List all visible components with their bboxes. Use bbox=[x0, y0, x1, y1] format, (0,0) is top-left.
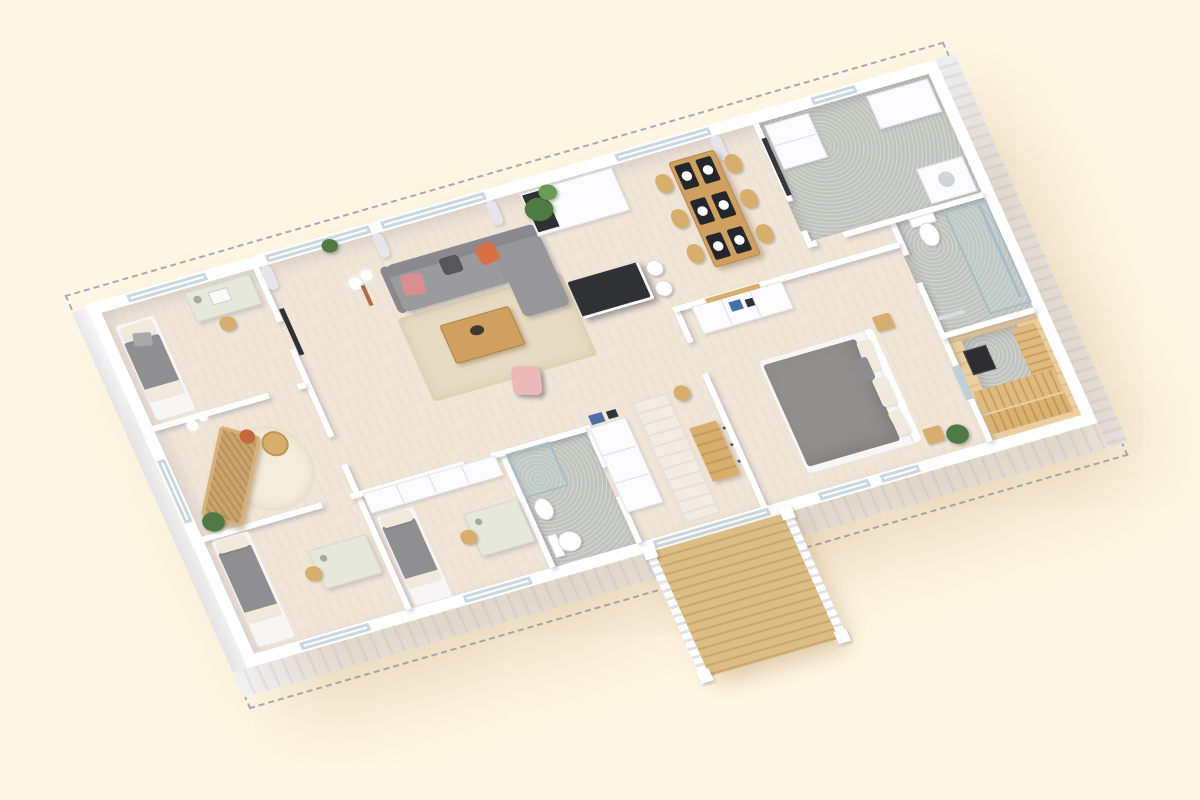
plate bbox=[732, 234, 746, 246]
throw-cushion bbox=[132, 332, 153, 347]
plate bbox=[717, 199, 731, 211]
lounge-chair-pink bbox=[511, 366, 543, 395]
cushion-pink bbox=[399, 272, 427, 296]
deck-post bbox=[833, 629, 851, 645]
plate bbox=[711, 240, 725, 252]
plate bbox=[701, 164, 715, 176]
floor-plan-canvas bbox=[0, 0, 1200, 800]
plate bbox=[680, 170, 694, 182]
house-3d-view bbox=[85, 60, 1098, 669]
plate bbox=[696, 205, 710, 217]
